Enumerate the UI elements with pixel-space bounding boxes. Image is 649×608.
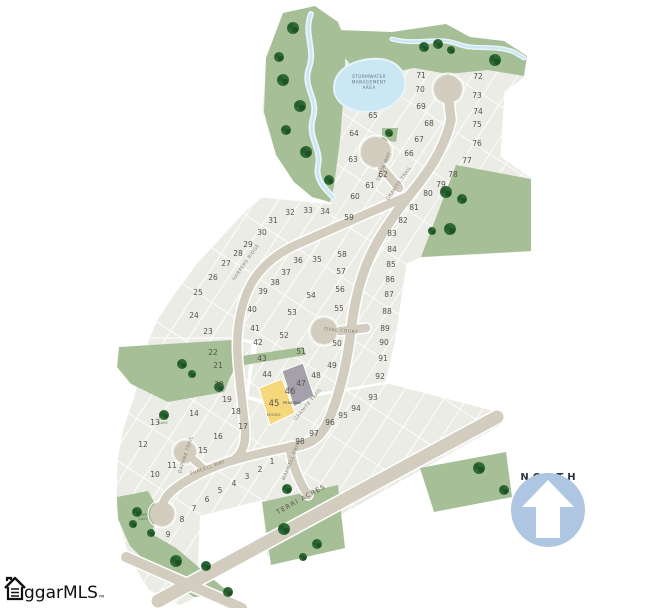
lot-number-95: 95 (338, 411, 348, 420)
lot-number-91: 91 (378, 354, 388, 363)
lot-number-44: 44 (262, 370, 272, 379)
tree-icon (444, 223, 456, 235)
lot-number-87: 87 (384, 290, 394, 299)
lot-number-76: 76 (472, 139, 482, 148)
lot-number-16: 16 (213, 432, 223, 441)
lot-number-68: 68 (424, 119, 434, 128)
tree-icon (170, 555, 182, 567)
lot-number-28: 28 (233, 249, 243, 258)
lot-number-64: 64 (349, 129, 359, 138)
lot-number-50: 50 (332, 339, 342, 348)
lot-46-status-label: PENDING (283, 401, 301, 405)
tree-icon (385, 129, 393, 137)
lot-number-88: 88 (382, 307, 392, 316)
lot-number-23: 23 (203, 327, 213, 336)
lot-number-61: 61 (365, 181, 375, 190)
lot-number-98: 98 (295, 437, 305, 446)
lot-number-5: 5 (218, 486, 223, 495)
lot-number-36: 36 (293, 256, 303, 265)
lot-number-8: 8 (180, 515, 185, 524)
lot-number-29: 29 (243, 240, 253, 249)
lot-number-12: 12 (138, 440, 148, 449)
lot-number-47: 47 (296, 379, 306, 388)
north-arrow-icon (508, 470, 588, 550)
lot-number-7: 7 (192, 504, 197, 513)
lot-number-77: 77 (462, 156, 472, 165)
lot-number-33: 33 (303, 206, 313, 215)
lot-number-32: 32 (285, 208, 295, 217)
tree-icon (419, 42, 429, 52)
lot-number-19: 19 (222, 395, 232, 404)
lot-number-45: 45 (269, 399, 280, 409)
lot-number-27: 27 (221, 259, 231, 268)
lot-number-34: 34 (320, 207, 330, 216)
lot-number-65: 65 (368, 111, 378, 120)
lot-number-94: 94 (351, 404, 361, 413)
lot-number-70: 70 (415, 85, 425, 94)
lot-number-10: 10 (150, 470, 160, 479)
lot-number-56: 56 (335, 285, 345, 294)
lot-number-89: 89 (380, 324, 390, 333)
lot-number-26: 26 (208, 273, 218, 282)
tree-icon (282, 484, 292, 494)
tree-save-label: TREESAVE (137, 513, 148, 521)
lot-number-21: 21 (213, 361, 223, 370)
lot-number-46: 46 (285, 387, 296, 397)
tree-icon (312, 539, 322, 549)
lot-number-3: 3 (245, 472, 250, 481)
lot-number-74: 74 (473, 107, 483, 116)
lot-number-11: 11 (167, 461, 177, 470)
lot-number-83: 83 (387, 229, 397, 238)
lot-number-62: 62 (378, 170, 388, 179)
lot-number-14: 14 (189, 409, 199, 418)
tree-icon (489, 54, 501, 66)
north-indicator: NORTH (508, 470, 588, 566)
tree-icon (447, 46, 455, 54)
tree-icon (294, 100, 306, 112)
lot-number-24: 24 (189, 311, 199, 320)
lot-number-42: 42 (253, 338, 263, 347)
lot-number-67: 67 (414, 135, 424, 144)
tree-icon (299, 553, 307, 561)
tree-icon (274, 52, 284, 62)
lot-number-93: 93 (368, 393, 378, 402)
lot-number-49: 49 (327, 361, 337, 370)
lot-number-9: 9 (166, 530, 171, 539)
lot-number-69: 69 (416, 102, 426, 111)
tree-icon (223, 587, 233, 597)
lot-number-66: 66 (404, 149, 414, 158)
lot-number-63: 63 (348, 155, 358, 164)
lot-number-41: 41 (250, 324, 260, 333)
lot-number-82: 82 (398, 216, 408, 225)
tree-icon (324, 175, 334, 185)
lot-number-53: 53 (287, 308, 297, 317)
lot-number-84: 84 (387, 245, 397, 254)
tree-icon (433, 39, 443, 49)
lot-number-59: 59 (344, 213, 354, 222)
tree-icon (300, 146, 312, 158)
lot-number-43: 43 (257, 354, 267, 363)
lot-number-22: 22 (208, 348, 218, 357)
tree-icon (129, 520, 137, 528)
plat-map-screenshot: STORMWATERMANAGEMENTAREATREESAVETREESAVE… (0, 0, 649, 608)
tree-icon (457, 194, 467, 204)
lot-number-48: 48 (311, 371, 321, 380)
logo-trademark: ™ (98, 594, 106, 603)
lot-number-17: 17 (238, 422, 248, 431)
lot-number-1: 1 (270, 457, 275, 466)
lot-number-72: 72 (473, 72, 483, 81)
lot-number-15: 15 (198, 446, 208, 455)
lot-number-80: 80 (423, 189, 433, 198)
lot-number-18: 18 (231, 407, 241, 416)
lot-number-60: 60 (350, 192, 360, 201)
tree-icon (278, 523, 290, 535)
lot-number-81: 81 (409, 203, 419, 212)
lot-number-97: 97 (309, 429, 319, 438)
lot-number-4: 4 (232, 479, 237, 488)
tree-icon (287, 22, 299, 34)
lot-number-79: 79 (436, 180, 446, 189)
lot-number-37: 37 (281, 268, 291, 277)
tree-icon (428, 227, 436, 235)
lot-number-78: 78 (448, 170, 458, 179)
lot-number-58: 58 (337, 250, 347, 259)
mls-logo: ggarMLS ™ (2, 573, 106, 603)
lot-number-92: 92 (375, 372, 385, 381)
lot-number-57: 57 (336, 267, 346, 276)
lot-45-status-label: MODEL (267, 413, 282, 417)
lot-number-38: 38 (270, 278, 280, 287)
tree-icon (188, 370, 196, 378)
lot-number-13: 13 (150, 418, 160, 427)
lot-number-35: 35 (312, 255, 322, 264)
lot-number-55: 55 (334, 304, 344, 313)
lot-number-52: 52 (279, 331, 289, 340)
lot-number-75: 75 (472, 120, 482, 129)
lot-number-40: 40 (247, 305, 257, 314)
lot-number-85: 85 (386, 260, 396, 269)
lot-number-90: 90 (379, 338, 389, 347)
tree-icon (281, 125, 291, 135)
tree-icon (147, 529, 155, 537)
lot-number-30: 30 (257, 228, 267, 237)
lot-number-31: 31 (268, 216, 278, 225)
tree-icon (201, 561, 211, 571)
lot-number-86: 86 (385, 275, 395, 284)
lot-number-6: 6 (205, 495, 210, 504)
lot-number-2: 2 (258, 465, 263, 474)
lot-number-71: 71 (416, 71, 426, 80)
tree-icon (177, 359, 187, 369)
tree-icon (277, 74, 289, 86)
lot-number-54: 54 (306, 291, 316, 300)
lot-number-39: 39 (258, 287, 268, 296)
lot-number-20: 20 (214, 380, 224, 389)
lot-number-96: 96 (325, 418, 335, 427)
tree-icon (473, 462, 485, 474)
lot-number-51: 51 (296, 347, 306, 356)
logo-text: ggarMLS (24, 583, 98, 603)
lot-number-73: 73 (472, 91, 482, 100)
lot-number-25: 25 (193, 288, 203, 297)
